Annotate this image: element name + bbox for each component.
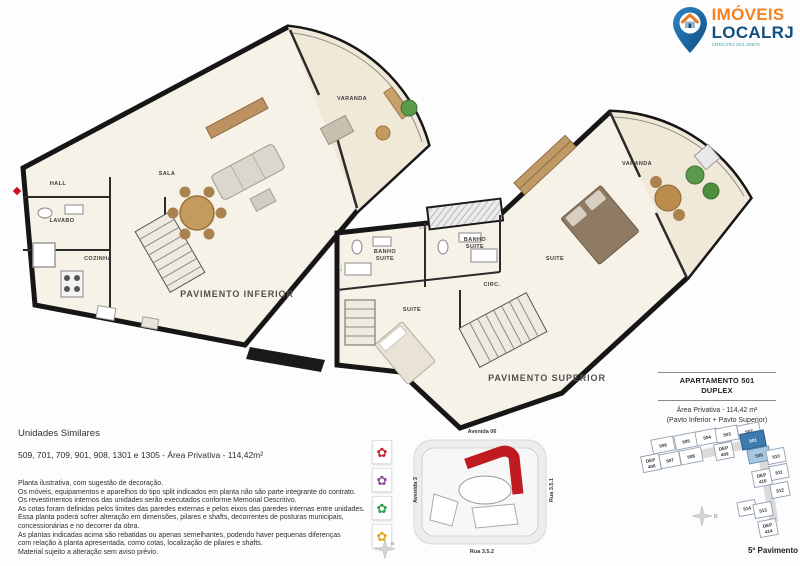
apartment-number: APARTAMENTO 501: [658, 376, 776, 386]
entrance-marker-icon: [13, 187, 21, 195]
service-shaft: [246, 347, 325, 372]
keyplan-unit: 510: [766, 447, 786, 464]
disclaimer-line: com relação à planta apresentada, como c…: [18, 540, 410, 549]
red-flower-icon: ✿: [377, 446, 388, 459]
varanda-chair: [673, 209, 685, 221]
footprint-b: [472, 504, 518, 528]
street-label-left: Avenida 3: [413, 477, 419, 503]
similar-units-title: Unidades Similares: [18, 428, 410, 439]
room-label-lavabo: LAVABO: [50, 218, 75, 224]
room-label-banho1-l2: SUITE: [376, 256, 394, 262]
disclaimer-line: Material sujeito a alteração sem aviso p…: [18, 549, 410, 558]
disclaimer-line: Os revestimentos internos das unidades s…: [18, 497, 410, 506]
room-label-hall: HALL: [50, 181, 67, 187]
plant-icon: [686, 166, 704, 184]
keyplan-unit: 503: [715, 425, 739, 443]
legend-item-red: ✿: [372, 440, 392, 464]
siteplan-legend: ✿ ✿ ✿ ✿: [372, 440, 396, 548]
brand-name-bottom: LOCALRJ: [712, 24, 794, 41]
brand-registration: CRECI/RJ 001.306/O: [712, 43, 794, 48]
disclaimer-line: As plantas indicadas acima são rebatidas…: [18, 532, 410, 541]
keyplan-unit: 505: [674, 432, 698, 450]
flyer-page: IMÓVEIS LOCALRJ CRECI/RJ 001.306/O: [0, 0, 800, 566]
apartment-area: Área Privativa - 114,42 m²: [658, 407, 776, 414]
disclaimer-line: Os móveis, equipamentos e aparelhos do t…: [18, 489, 410, 498]
keyplan-unit-dep: DEP406: [641, 453, 662, 472]
room-label-banho1-l1: BANHO: [374, 249, 396, 255]
brand-wordmark: IMÓVEIS LOCALRJ CRECI/RJ 001.306/O: [712, 6, 794, 48]
keyplan-unit: 513: [753, 501, 773, 518]
varanda-round-table: [655, 185, 681, 211]
disclaimer-line: As cotas foram definidas pelos limites d…: [18, 506, 410, 515]
apartment-type: DUPLEX: [658, 386, 776, 396]
disclaimer-line: concessionárias e no decorrer da obra.: [18, 523, 410, 532]
keyplan-unit: 506: [651, 436, 675, 454]
site-pool: [459, 476, 511, 504]
svg-text:N: N: [714, 514, 718, 520]
disclaimer-line: Essa planta poderá sofrer alteração em d…: [18, 514, 410, 523]
brand-logo: IMÓVEIS LOCALRJ CRECI/RJ 001.306/O: [672, 6, 794, 54]
keyplan-unit-dep: DEP416: [752, 468, 773, 487]
plan-inferior-caption: PAVIMENTO INFERIOR: [180, 289, 294, 299]
corner-stair: [345, 300, 375, 345]
disclaimer-line: Planta ilustrativa, com sugestão de deco…: [18, 480, 410, 489]
svg-text:N: N: [391, 541, 394, 546]
room-label-varanda-sup: VARANDA: [622, 161, 652, 167]
floor-keyplan: 506 505 504 503 502 DEP406 507 508 DEP40…: [636, 420, 800, 552]
room-label-suite2: SUITE: [403, 307, 421, 313]
purple-flower-icon: ✿: [377, 474, 388, 487]
compass-icon: N: [374, 538, 396, 560]
keyplan-unit: 511: [769, 463, 789, 480]
legend-item-green: ✿: [372, 496, 392, 520]
room-label-banho2-l1: BANHO: [464, 237, 486, 243]
notes-block: Unidades Similares 509, 701, 709, 901, 9…: [18, 428, 410, 557]
map-pin-icon: [672, 6, 708, 54]
room-label-suite-master: SUITE: [546, 256, 564, 262]
room-label-cozinha: COZINHA: [84, 256, 112, 262]
apartment-title-block: APARTAMENTO 501 DUPLEX: [658, 372, 776, 401]
site-plan: Avenida 06 Avenida 3 Rua 3.5.1 Rua 3.5.2: [406, 424, 558, 556]
street-label-bottom: Rua 3.5.2: [470, 549, 494, 555]
legend-item-purple: ✿: [372, 468, 392, 492]
dim-2-77: 2.77: [338, 262, 343, 271]
room-label-banho2-l2: SUITE: [466, 244, 484, 250]
brand-name-top: IMÓVEIS: [712, 6, 794, 23]
keyplan-compass-icon: N: [692, 506, 718, 526]
keyplan-unit: 507: [659, 451, 681, 469]
dim-2-95: 2.95: [419, 225, 428, 230]
room-label-circ: CIRC.: [484, 282, 501, 288]
varanda-chair: [650, 176, 662, 188]
similar-units-list: 509, 701, 709, 901, 908, 1301 e 1305 - Á…: [18, 450, 410, 460]
floor-label: 5º Pavimento: [722, 546, 798, 555]
room-label-sala: SALA: [159, 171, 176, 177]
street-label-right: Rua 3.5.1: [549, 478, 555, 502]
apartment-info: APARTAMENTO 501 DUPLEX Área Privativa - …: [658, 372, 776, 424]
keyplan-unit: 512: [770, 481, 790, 498]
green-flower-icon: ✿: [377, 502, 388, 515]
plan-superior-caption: PAVIMENTO SUPERIOR: [488, 373, 606, 383]
street-label-top: Avenida 06: [468, 429, 497, 435]
keyplan-unit-dep: DEP414: [758, 518, 779, 537]
disclaimer: Planta ilustrativa, com sugestão de deco…: [18, 480, 410, 557]
plant-icon: [703, 183, 719, 199]
keyplan-unit: 508: [679, 447, 703, 465]
keyplan-unit-dep: DEP409: [714, 441, 735, 460]
